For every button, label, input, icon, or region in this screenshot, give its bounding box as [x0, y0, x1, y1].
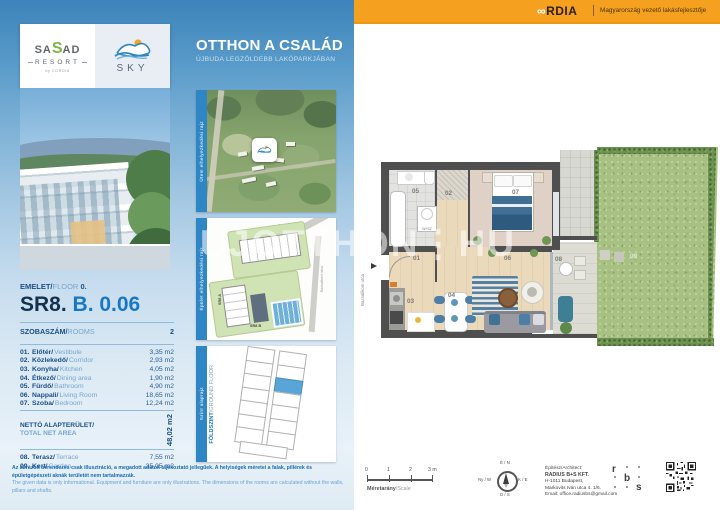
compass-north: É / N — [500, 460, 510, 465]
compass-south: D / S — [500, 492, 510, 497]
chair — [434, 296, 445, 304]
garden — [597, 147, 718, 346]
hedge — [594, 150, 599, 242]
terrace-foreground — [20, 244, 170, 270]
glass-wall — [550, 252, 553, 330]
pillow — [494, 175, 513, 187]
lounge-chair — [558, 296, 573, 322]
sky-label: SKY — [116, 63, 148, 74]
compass: É / N Ny / W K / E D / S — [478, 460, 534, 502]
street-label: Bazsalikom utca — [320, 266, 324, 292]
kitchen-island — [407, 312, 435, 332]
sasad-wordmark: SASAD — [35, 40, 81, 58]
room-label: 08 — [555, 256, 562, 263]
disclaimer: Az ábrázolt berendezés csak illusztráció… — [12, 465, 346, 495]
floor-line: EMELET/FLOOR 0. — [20, 282, 174, 291]
divider — [593, 5, 594, 16]
thumb-label-strip: Ütem elhelyezkedési rajz — [196, 90, 207, 212]
decor — [390, 282, 397, 287]
table-row: 07.Szoba/Bedroom12,24 m2 — [20, 400, 174, 409]
room-count: 2 — [170, 327, 174, 336]
unit-code: SR8. B. 0.06 — [20, 293, 174, 317]
road — [206, 90, 225, 212]
thumb-floor-key: FÖLDSZINT/GROUND FLOOR Szint alaprajz — [196, 346, 336, 462]
north-needle — [503, 473, 509, 484]
by-cordia-label: by CORDIA — [45, 69, 69, 73]
hedge — [597, 147, 716, 154]
cordia-tagline: Magyarország vezető lakásfejlesztője — [600, 7, 706, 14]
pillow — [513, 175, 532, 187]
room-label: 02 — [445, 190, 452, 197]
toilet — [424, 171, 435, 185]
sofa-cushion — [489, 314, 500, 325]
table-setting — [451, 299, 458, 306]
sky-logo: SKY — [95, 24, 170, 88]
rooms-header: SZOBASZÁM/ROOMS 2 — [20, 323, 174, 339]
unit-info: EMELET/FLOOR 0. SR8. B. 0.06 SZOBASZÁM/R… — [20, 282, 174, 470]
compass-east: K / E — [518, 477, 528, 482]
table-row: 02.Közlekedő/Corridor2,93 m2 — [20, 357, 174, 366]
road — [206, 159, 335, 181]
chair — [465, 315, 476, 323]
thumb-label-strip: Szint alaprajz — [196, 346, 207, 462]
divider — [20, 344, 174, 345]
brand-logos: SASAD RESORT by CORDIA SKY — [20, 24, 170, 88]
chair — [434, 315, 445, 323]
table-row: 05.Fürdő/Bathroom4,90 m2 — [20, 382, 174, 391]
fruit-bowl — [415, 317, 421, 323]
qr-code — [666, 462, 696, 497]
table-setting — [451, 315, 458, 322]
rooms-table: 01.Előtér/Vestibule3,35 m2 02.Közlekedő/… — [20, 348, 174, 408]
sasad-resort-logo: SASAD RESORT by CORDIA — [20, 24, 95, 88]
cordia-header-bar: ∞RDIA Magyarország vezető lakásfejlesztő… — [354, 0, 720, 24]
campaign-title: OTTHON A CSALÁD — [196, 37, 354, 54]
blanket-fold — [492, 204, 532, 207]
key-plan — [233, 346, 313, 460]
room-label: 05 — [412, 188, 419, 195]
washer-drum — [421, 208, 433, 220]
neighbor-paving — [560, 150, 597, 238]
stepping-stone — [600, 250, 610, 260]
sink-bowl — [393, 295, 400, 302]
rbs-mark — [626, 466, 628, 468]
architect-info: Építész/Architect: RADIUS B+S KFT. H-101… — [545, 466, 617, 499]
net-area-row: NETTÓ ALAPTERÜLET/TOTAL NET AREA 48,02 m… — [20, 410, 174, 450]
stepping-stone — [614, 252, 624, 262]
hedge — [597, 338, 714, 346]
table-row: 08.Terasz/Terrace7,55 m2 — [20, 453, 174, 462]
wardrobe — [437, 170, 468, 200]
nightstand — [533, 172, 544, 183]
rbs-mark — [638, 466, 640, 468]
room-label: 03 — [407, 298, 414, 305]
wall — [560, 236, 597, 240]
compass-west: Ny / W — [478, 477, 491, 482]
basin — [405, 173, 413, 181]
stove — [390, 311, 403, 324]
rbs-mark — [614, 486, 616, 488]
coffee-table — [498, 288, 518, 308]
room-label: 09 — [630, 253, 637, 260]
rbs-mark — [626, 486, 628, 488]
plant — [542, 236, 551, 245]
table-row: 04.Étkező/Dining area1,90 m2 — [20, 374, 174, 383]
thumb-phase-map: Ütem elhelyezkedési rajz — [196, 90, 336, 212]
terrace-chair — [574, 270, 586, 280]
sofa-cushion — [533, 314, 544, 325]
wall — [381, 162, 560, 170]
terrace-chair — [574, 256, 586, 266]
sasad-resort-label: RESORT — [29, 59, 86, 66]
room-label: 04 — [448, 292, 455, 299]
terrace-table — [559, 262, 573, 276]
sky-location-marker — [252, 138, 277, 162]
table-row: 06.Nappali/Living Room18,65 m2 — [20, 391, 174, 400]
datasheet-page: SASAD RESORT by CORDIA SKY OTTHON A CSAL… — [0, 0, 720, 510]
building-label: SR8 A — [218, 294, 222, 305]
armchair-cushion — [527, 287, 537, 297]
lit-interior — [70, 220, 106, 246]
sky-cloud-icon — [111, 38, 155, 62]
cordia-logo: ∞RDIA — [537, 4, 577, 18]
infinity-icon: ∞ — [537, 4, 546, 18]
window — [553, 192, 559, 236]
rbs-logo: r b s — [612, 464, 646, 494]
rbs-mark — [638, 476, 640, 478]
campaign-block: OTTHON A CSALÁD ÚJBUDA LEGZÖLDEBB LAKÓPA… — [196, 37, 354, 63]
sofa-cushion — [519, 314, 530, 325]
table-row: 03.Konyha/Kitchen4,05 m2 — [20, 365, 174, 374]
watermark: UJOTTHON⋮HU — [200, 222, 512, 265]
sky-cloud-icon — [256, 144, 273, 156]
south-needle — [504, 484, 508, 488]
net-area-value: 48,02 m2 — [165, 414, 174, 446]
pool — [270, 298, 303, 328]
campaign-subtitle: ÚJBUDA LEGZÖLDEBB LAKÓPARKJÁBAN — [196, 56, 354, 63]
floor-key-label: FÖLDSZINT/GROUND FLOOR — [209, 352, 215, 456]
rbs-mark — [614, 476, 616, 478]
table-row: 01.Előtér/Vestibule3,35 m2 — [20, 348, 174, 357]
plant — [530, 249, 538, 257]
plant — [560, 322, 572, 334]
building-label: SR8 B — [250, 324, 261, 328]
room-label: 07 — [512, 189, 519, 196]
building-photo — [20, 88, 170, 270]
wall — [532, 334, 597, 338]
